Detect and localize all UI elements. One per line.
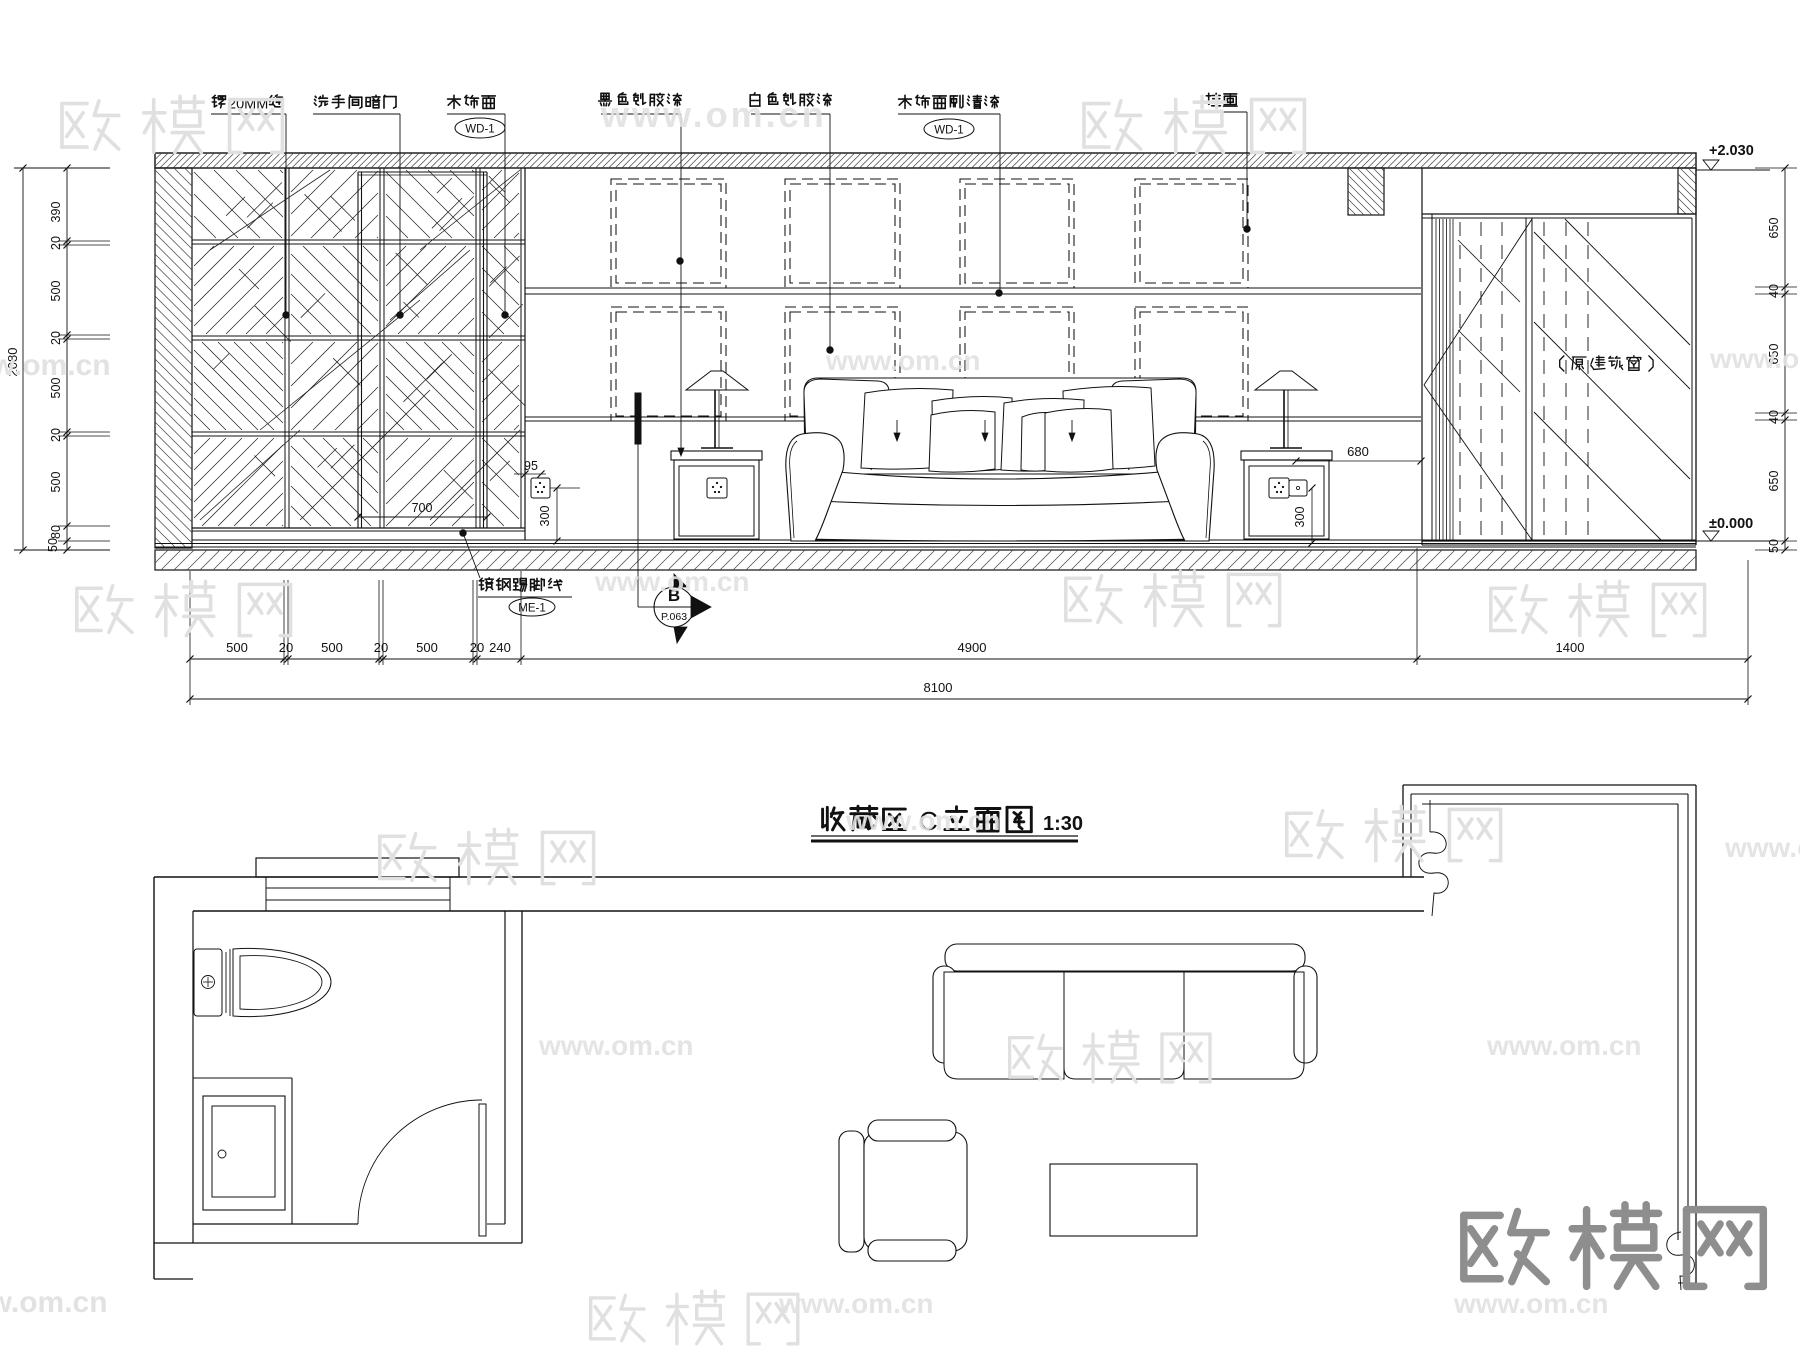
svg-text:www.om.cn: www.om.cn <box>1724 832 1800 863</box>
svg-text:40: 40 <box>1767 410 1781 424</box>
svg-text:www.om.cn: www.om.cn <box>1709 343 1800 374</box>
svg-text:±0.000: ±0.000 <box>1709 516 1753 532</box>
svg-text:1400: 1400 <box>1556 640 1585 655</box>
svg-text:20: 20 <box>470 640 484 655</box>
svg-text:680: 680 <box>1347 444 1369 459</box>
svg-text:20: 20 <box>49 236 63 250</box>
svg-text:www.om.cn: www.om.cn <box>825 345 981 376</box>
svg-text:www.om.cn: www.om.cn <box>0 1286 108 1319</box>
svg-text:www.om.cn: www.om.cn <box>778 1288 934 1319</box>
svg-text:50: 50 <box>46 538 60 552</box>
svg-text:20: 20 <box>279 640 293 655</box>
svg-text:4900: 4900 <box>958 640 987 655</box>
svg-text:www.om.cn: www.om.cn <box>594 566 750 597</box>
svg-text:80: 80 <box>49 525 63 539</box>
svg-text:www.om.cn: www.om.cn <box>845 805 1001 836</box>
svg-text:P.063: P.063 <box>661 611 687 623</box>
svg-text:700: 700 <box>412 501 433 515</box>
svg-text:ME-1: ME-1 <box>518 603 545 615</box>
svg-text:8100: 8100 <box>924 680 953 695</box>
svg-text:+2.030: +2.030 <box>1709 143 1754 159</box>
svg-text:650: 650 <box>1767 471 1781 492</box>
svg-text:650: 650 <box>1767 218 1781 239</box>
svg-text:500: 500 <box>416 640 438 655</box>
svg-text:500: 500 <box>49 472 63 493</box>
svg-text:300: 300 <box>538 506 552 527</box>
svg-text:95: 95 <box>524 459 538 473</box>
svg-text:www.om.cn: www.om.cn <box>0 349 111 382</box>
svg-text:www.om.cn: www.om.cn <box>1453 1288 1609 1319</box>
svg-text:500: 500 <box>49 281 63 302</box>
svg-text:20: 20 <box>49 331 63 345</box>
svg-text:500: 500 <box>321 640 343 655</box>
svg-text:300: 300 <box>1293 507 1307 528</box>
svg-text:www.om.cn: www.om.cn <box>1486 1030 1642 1061</box>
svg-text:www.om.cn: www.om.cn <box>538 1030 694 1061</box>
svg-text:240: 240 <box>489 640 511 655</box>
svg-text:40: 40 <box>1767 284 1781 298</box>
svg-text:20: 20 <box>49 428 63 442</box>
svg-text:www.om.cn: www.om.cn <box>600 94 827 135</box>
svg-text:20: 20 <box>374 640 388 655</box>
svg-text:1:30: 1:30 <box>1043 813 1083 835</box>
svg-text:WD-1: WD-1 <box>465 124 494 136</box>
svg-text:WD-1: WD-1 <box>934 125 963 137</box>
svg-text:390: 390 <box>49 202 63 223</box>
svg-text:500: 500 <box>226 640 248 655</box>
